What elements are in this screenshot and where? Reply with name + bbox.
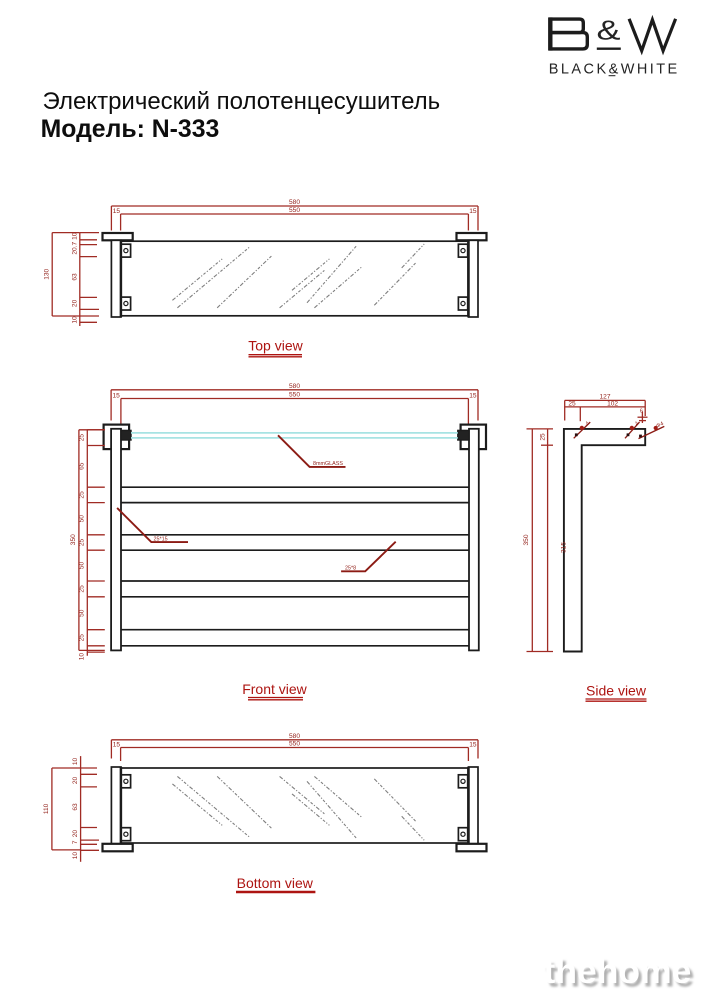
svg-text:15: 15 — [113, 741, 121, 748]
svg-text:Top view: Top view — [248, 338, 303, 354]
svg-text:20: 20 — [72, 830, 79, 838]
svg-text:BLACK&WHITE: BLACK&WHITE — [549, 61, 680, 77]
svg-text:10: 10 — [72, 758, 79, 766]
svg-text:Модель: N-333: Модель: N-333 — [41, 116, 220, 143]
svg-text:25: 25 — [568, 400, 576, 407]
svg-text:580: 580 — [289, 199, 300, 206]
svg-text:7: 7 — [72, 840, 79, 844]
svg-text:15: 15 — [469, 392, 477, 399]
svg-text:Φ4: Φ4 — [655, 421, 664, 430]
svg-text:10: 10 — [71, 316, 78, 324]
svg-text:Side view: Side view — [586, 683, 647, 699]
svg-text:4: 4 — [634, 421, 640, 427]
svg-text:thehome: thehome — [544, 951, 692, 991]
svg-text:63: 63 — [71, 273, 78, 281]
svg-text:15: 15 — [469, 741, 477, 748]
svg-text:110: 110 — [43, 803, 50, 814]
svg-text:20: 20 — [71, 299, 78, 307]
svg-text:20: 20 — [72, 777, 79, 785]
svg-text:10: 10 — [72, 852, 79, 860]
svg-text:Электрический полотенцесушител: Электрический полотенцесушитель — [43, 88, 441, 115]
svg-text:25*8: 25*8 — [345, 565, 356, 571]
svg-text:Bottom view: Bottom view — [237, 875, 314, 891]
svg-text:350: 350 — [70, 534, 77, 545]
svg-text:25*15: 25*15 — [154, 536, 168, 542]
svg-text:10: 10 — [71, 232, 78, 240]
svg-text:15: 15 — [113, 392, 121, 399]
svg-text:580: 580 — [289, 733, 300, 740]
svg-text:Front view: Front view — [242, 681, 307, 697]
svg-text:350: 350 — [523, 534, 530, 545]
svg-text:550: 550 — [289, 207, 300, 214]
svg-text:102: 102 — [607, 400, 618, 407]
svg-text:63: 63 — [72, 803, 79, 811]
svg-text:25: 25 — [539, 433, 546, 441]
svg-text:6: 6 — [640, 409, 643, 415]
svg-text:10: 10 — [78, 653, 85, 661]
svg-text:580: 580 — [289, 383, 300, 390]
svg-text:130: 130 — [43, 268, 50, 279]
svg-text:20.7: 20.7 — [71, 241, 78, 254]
svg-text:15: 15 — [469, 208, 477, 215]
svg-text:550: 550 — [289, 741, 300, 748]
svg-text:315: 315 — [560, 542, 567, 553]
svg-text:8mmGLASS: 8mmGLASS — [313, 461, 343, 467]
svg-text:&: & — [597, 15, 621, 46]
svg-text:15: 15 — [113, 208, 121, 215]
svg-text:550: 550 — [289, 392, 300, 399]
